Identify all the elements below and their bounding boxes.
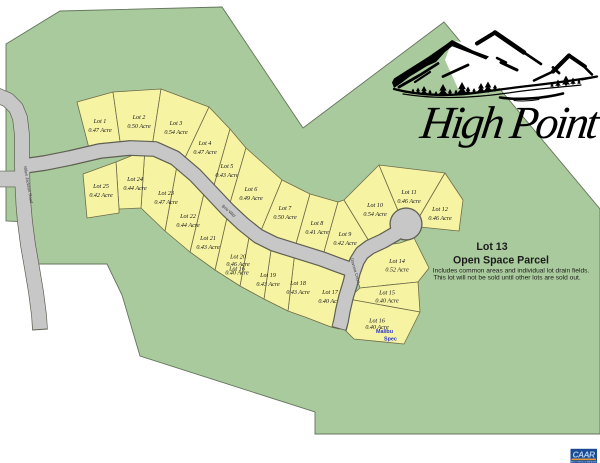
svg-text:Lot 13: Lot 13 bbox=[476, 241, 507, 253]
svg-text:This lot will not be sold unti: This lot will not be sold until other lo… bbox=[433, 274, 581, 281]
svg-text:Malibu: Malibu bbox=[376, 329, 393, 335]
svg-text:High Point: High Point bbox=[417, 97, 600, 148]
svg-text:Spec: Spec bbox=[384, 337, 397, 343]
svg-text:Open Space Parcel: Open Space Parcel bbox=[453, 255, 549, 267]
svg-text:CAAR: CAAR bbox=[573, 450, 596, 460]
